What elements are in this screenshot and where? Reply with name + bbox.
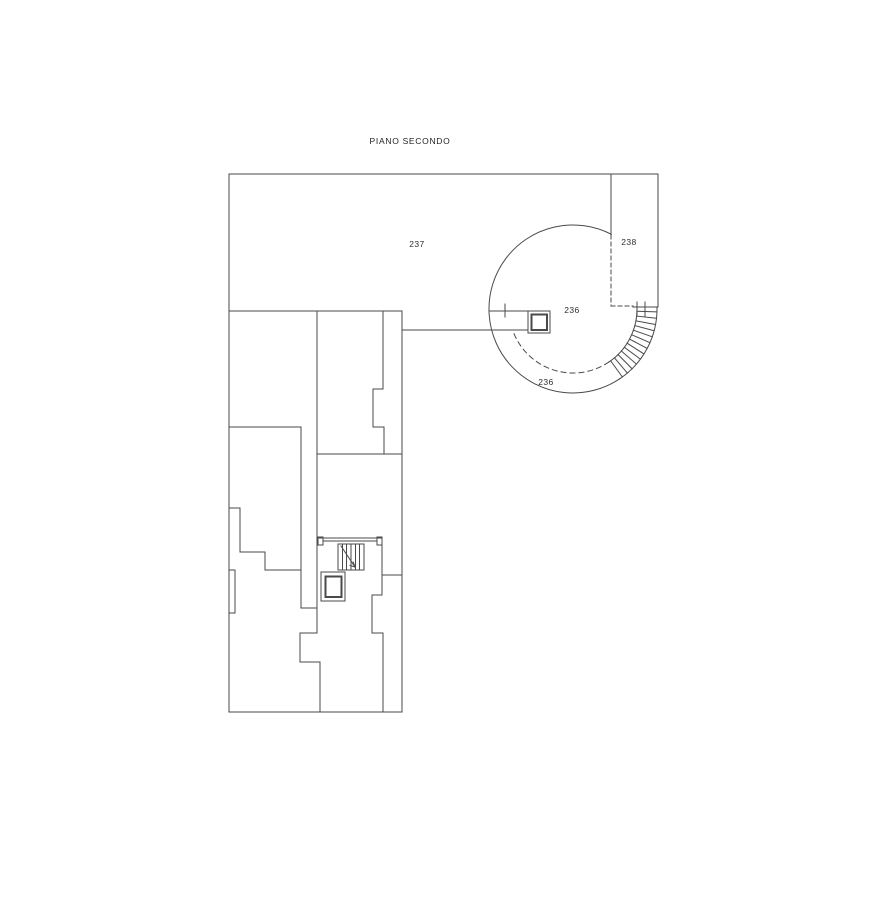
rotunda-outer-circle <box>489 225 620 393</box>
lower-wing-partitions <box>229 311 402 712</box>
rotunda-elevator <box>528 311 550 333</box>
room-label-238: 238 <box>621 237 636 247</box>
floor-title: PIANO SECONDO <box>370 136 451 146</box>
upper-block-outline <box>229 174 658 330</box>
stair-entry-ticks <box>637 302 645 316</box>
floor-plan-sheet: PIANO SECONDO 237 238 236 236 <box>0 0 879 904</box>
room-label-236-gallery: 236 <box>538 377 553 387</box>
gallery-dashed-arc <box>513 331 609 373</box>
stair-direction-arrow <box>341 546 355 567</box>
wing-elevator <box>321 572 345 601</box>
room-label-236-main: 236 <box>564 305 579 315</box>
room-label-237: 237 <box>409 239 424 249</box>
lower-wing-outline <box>229 311 402 712</box>
